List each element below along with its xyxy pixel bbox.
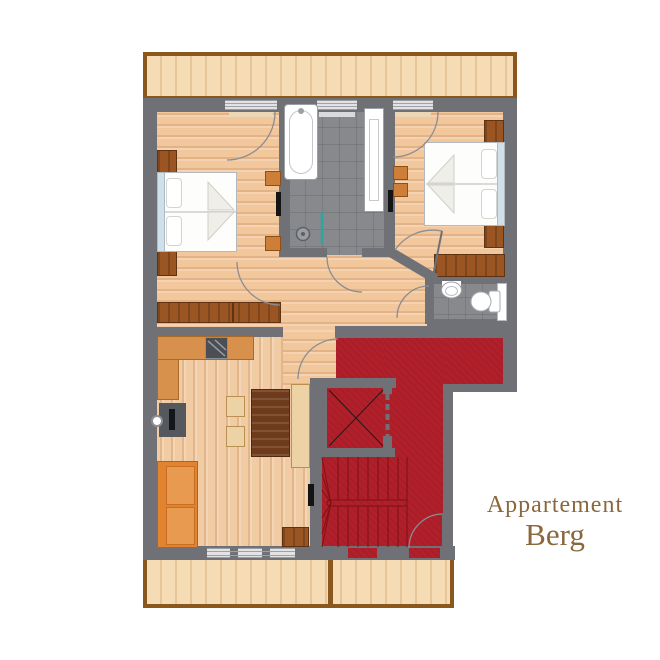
window-sill-left [229, 112, 273, 117]
double-bed-left [157, 172, 237, 252]
nightstand [484, 120, 504, 143]
mattress-split [165, 211, 236, 213]
dining-bench [291, 384, 310, 468]
nightstand [157, 150, 177, 173]
window-bathroom [317, 100, 357, 110]
chair [226, 426, 245, 447]
window-mullion-1 [230, 548, 238, 558]
stool [265, 171, 281, 186]
window-bedroom-left [225, 100, 277, 110]
wall-corridor-top [335, 326, 503, 338]
sofa-cushion [166, 507, 195, 545]
pillow [481, 189, 497, 219]
wall-elevator-stub-bottom [383, 436, 392, 450]
vanity-counter [364, 108, 384, 212]
wall-wc-bottom [427, 319, 503, 327]
double-bed-right [424, 142, 505, 226]
mattress-split [426, 183, 497, 185]
sofa-cushion [166, 466, 195, 505]
kitchen-counter-side [157, 359, 179, 400]
sofa [157, 461, 198, 548]
vanity-sink [369, 119, 379, 201]
nightstand [157, 251, 177, 276]
balcony-bottom [143, 556, 454, 608]
wall-bath-bottom-b [362, 248, 395, 257]
bench [434, 254, 505, 277]
pillow [166, 178, 182, 208]
door-stairs-exit [409, 548, 440, 558]
pillow [166, 216, 182, 246]
nightstand [484, 225, 504, 248]
window-bedroom-right [393, 100, 433, 110]
dining-table [251, 389, 290, 457]
stool [393, 166, 408, 180]
kitchen-sink-knob [151, 415, 163, 427]
kitchen-faucet [169, 409, 175, 430]
stool [265, 236, 281, 251]
bathtub-basin [289, 110, 313, 174]
floor-plan: Appartement Berg [0, 0, 660, 660]
stove [205, 337, 228, 359]
door-stairs-balcony-window [348, 548, 377, 558]
plan-title-line1: Appartement [452, 492, 658, 518]
wall-corridor-bottom-right [443, 384, 517, 392]
chair [226, 396, 245, 417]
sideboard-divider [232, 303, 234, 322]
wall-wc-left [425, 275, 434, 324]
wall-bath-right [384, 104, 395, 257]
window-mullion-2 [262, 548, 270, 558]
staircase-area [320, 456, 445, 548]
wall-elevator-left [313, 380, 327, 450]
stool [393, 183, 408, 197]
plan-title: Appartement Berg [452, 492, 658, 552]
headboard [158, 173, 165, 251]
window-sill-right [395, 112, 431, 117]
elevator-cab [327, 388, 385, 448]
window-living-room [207, 548, 295, 558]
sideboard [157, 302, 281, 323]
window-sill-bath [319, 112, 355, 117]
wc-door-leaf [497, 283, 507, 321]
plan-title-line2: Berg [452, 518, 658, 552]
wall-right [503, 98, 517, 390]
floor-wc [431, 280, 505, 324]
headboard [497, 143, 504, 225]
balcony-top [143, 52, 517, 100]
pillow [481, 149, 497, 179]
wall-bath-bottom-a [279, 248, 327, 257]
balcony-divider [328, 556, 333, 608]
cabinet [282, 527, 309, 547]
wall-elevator-stub-top [383, 382, 392, 394]
bathtub [284, 104, 318, 180]
